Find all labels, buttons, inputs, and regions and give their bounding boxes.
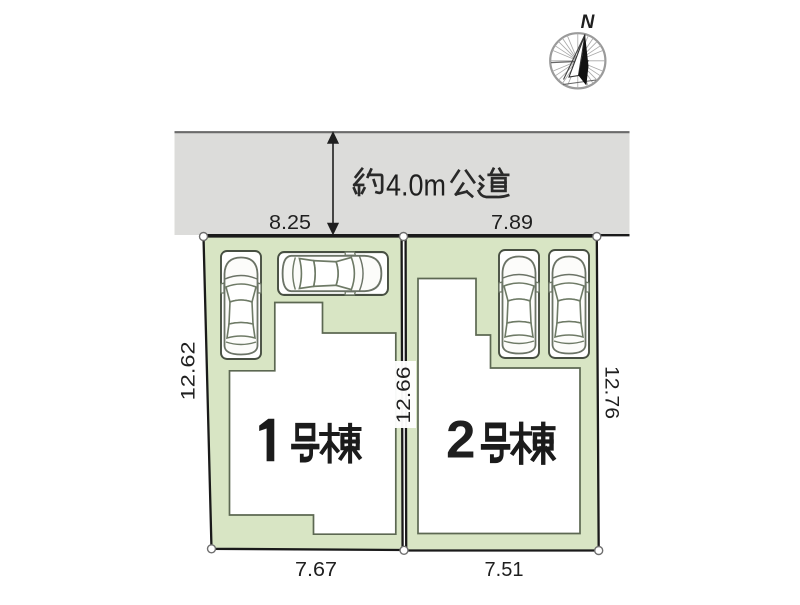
- svg-text:4.0m: 4.0m: [386, 168, 446, 203]
- svg-text:2: 2: [446, 411, 475, 470]
- svg-text:7.51: 7.51: [485, 559, 524, 581]
- svg-text:8.25: 8.25: [269, 212, 311, 234]
- svg-text:7.89: 7.89: [491, 212, 533, 234]
- svg-text:12.76: 12.76: [601, 366, 622, 419]
- svg-text:N: N: [581, 12, 596, 33]
- svg-text:12.66: 12.66: [394, 367, 415, 424]
- svg-text:7.67: 7.67: [295, 559, 337, 581]
- svg-text:12.62: 12.62: [179, 341, 200, 400]
